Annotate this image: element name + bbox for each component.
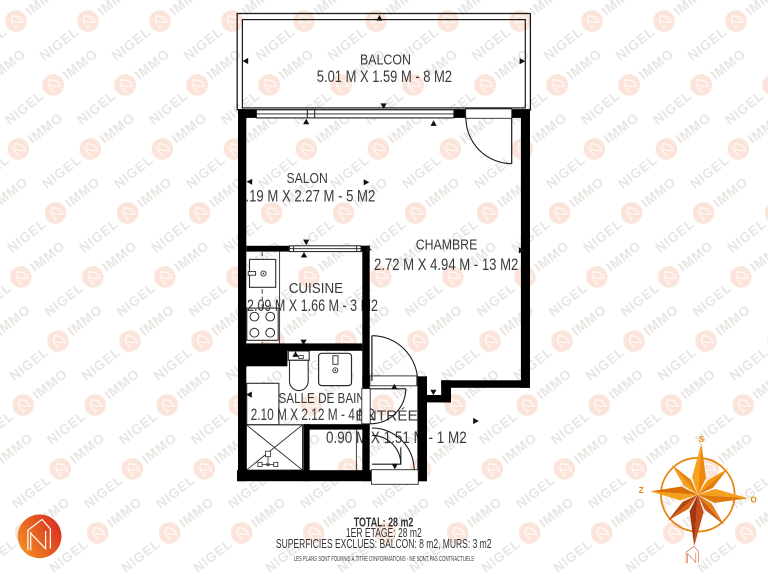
svg-text:S: S: [699, 435, 705, 444]
svg-text:2.19 M X 2.27 M - 5 M2: 2.19 M X 2.27 M - 5 M2: [238, 187, 375, 205]
svg-text:O: O: [750, 496, 756, 505]
svg-text:BALCON: BALCON: [360, 52, 411, 69]
svg-text:CUISINE: CUISINE: [289, 280, 343, 297]
svg-text:CHAMBRE: CHAMBRE: [416, 236, 478, 253]
svg-text:2.09 M X 1.66 M - 3 M2: 2.09 M X 1.66 M - 3 M2: [247, 297, 378, 315]
svg-text:SALLE DE BAIN: SALLE DE BAIN: [279, 390, 365, 407]
svg-text:SUPERFICIES EXCLUES: BALCON: 8: SUPERFICIES EXCLUES: BALCON: 8 m2, MURS:…: [276, 536, 492, 551]
svg-text:2.72 M X 4.94 M - 13 M2: 2.72 M X 4.94 M - 13 M2: [374, 256, 518, 274]
svg-text:LES PLANS SONT FOURNIS À TITRE: LES PLANS SONT FOURNIS À TITRE D'INFORMA…: [294, 554, 474, 563]
svg-text:SALON: SALON: [287, 170, 328, 187]
svg-text:Z: Z: [639, 486, 644, 495]
svg-text:0.90 M X 1.51 M - 1 M2: 0.90 M X 1.51 M - 1 M2: [326, 429, 467, 447]
svg-text:5.01 M X 1.59 M - 8 M2: 5.01 M X 1.59 M - 8 M2: [317, 68, 452, 86]
